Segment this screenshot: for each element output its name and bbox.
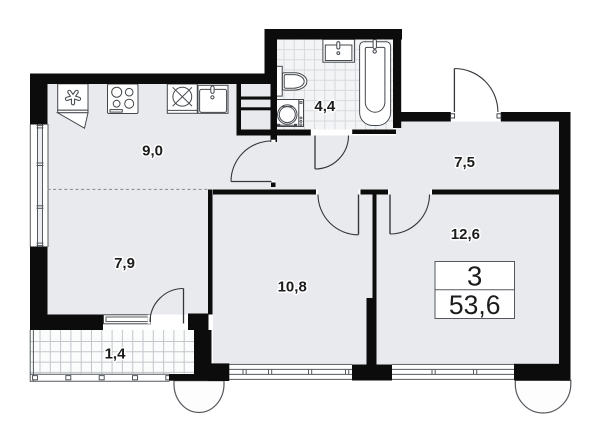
svg-text:7,9: 7,9	[114, 255, 135, 272]
svg-text:1,4: 1,4	[105, 345, 127, 362]
svg-text:7,5: 7,5	[454, 154, 475, 171]
svg-text:12,6: 12,6	[451, 226, 480, 243]
svg-text:9,0: 9,0	[142, 142, 163, 159]
svg-text:3: 3	[467, 261, 482, 292]
svg-text:4,4: 4,4	[314, 98, 336, 115]
svg-text:10,8: 10,8	[278, 279, 307, 296]
svg-text:53,6: 53,6	[449, 290, 501, 320]
